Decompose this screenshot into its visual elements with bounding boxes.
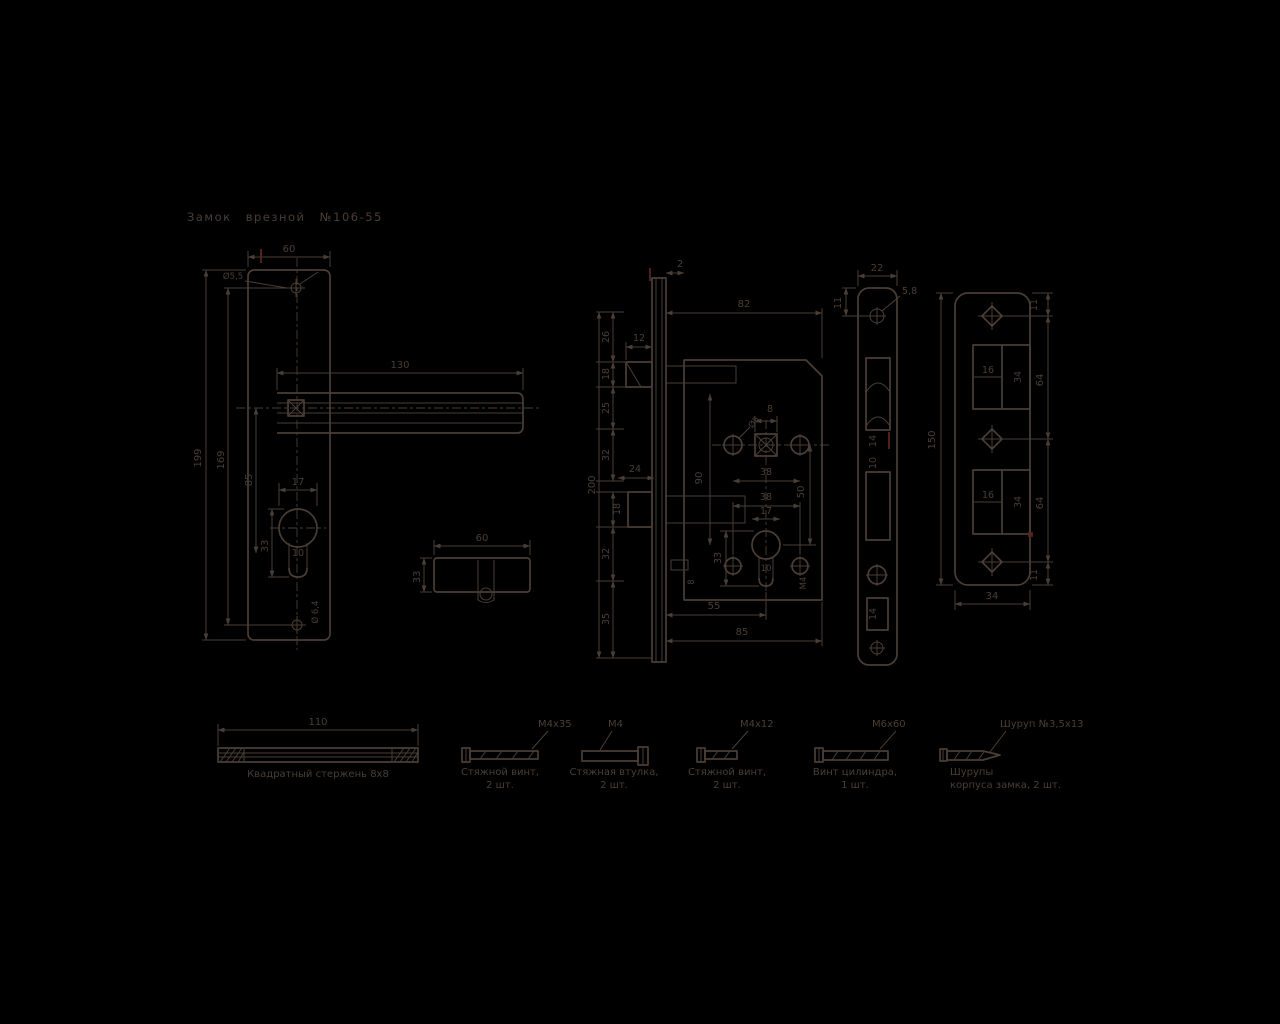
lock-technical-drawing: Замок врезной №106-55 60 Ø5,5 199 169 85: [0, 0, 1280, 1024]
cylinder-view: 60 33: [412, 533, 530, 603]
bolt-m6x60-item: М6х60 Винт цилиндра, 1 шт.: [813, 719, 906, 791]
caption-m6x60-2: 1 шт.: [841, 780, 869, 791]
dim-top-hole: Ø5,5: [223, 271, 243, 282]
dim-face-gap: 2: [677, 259, 683, 270]
hardware-legend: 110 Квадратный стержень 8х8: [218, 717, 1084, 791]
dim-plate-height: 199: [193, 448, 204, 467]
dim-strike-top-offset: 11: [1029, 299, 1040, 311]
caption-m4x12-1: Стяжной винт,: [688, 767, 766, 778]
dim-latch-height: 18: [601, 368, 612, 380]
caption-wood-screw-2: корпуса замка, 2 шт.: [950, 780, 1061, 791]
handle-plate-view: 60 Ø5,5 199 169 85 130: [193, 244, 540, 650]
dim-cutout1-width: 16: [982, 365, 994, 376]
lock-body-view: 2 82 12 24 26: [587, 259, 830, 662]
drawing-page: Замок врезной №106-55 60 Ø5,5 199 169 85: [0, 0, 1280, 1024]
dim-plate-cyl-slot: 10: [292, 548, 304, 559]
caption-m6x60-1: Винт цилиндра,: [813, 767, 897, 778]
bolt-m4x35-item: М4х35 Стяжной винт, 2 шт.: [461, 719, 572, 791]
dim-strike-height: 150: [927, 430, 938, 449]
caption-m4x35-2: 2 шт.: [486, 780, 514, 791]
dim-latch-window: 14: [868, 435, 879, 447]
dim-strike-lower-span: 64: [1035, 497, 1046, 510]
faceplate-view: 22 11 5,8 14 10 14: [833, 263, 917, 665]
dim-cutout2-width: 16: [982, 490, 994, 501]
square-rod-item: 110 Квадратный стержень 8х8: [218, 717, 418, 780]
caption-m4x35-1: Стяжной винт,: [461, 767, 539, 778]
dim-bottom-window: 14: [868, 608, 879, 620]
dim-handle-length: 130: [390, 360, 409, 371]
dim-faceplate-top-offset: 11: [833, 297, 844, 309]
dim-body-cyl-height: 33: [713, 552, 724, 564]
bushing-m4-item: М4 Стяжная втулка, 2 шт.: [569, 719, 658, 791]
dim-faceplate-width: 22: [871, 263, 884, 274]
dim-faceplate-screw-hole: 5,8: [902, 286, 917, 297]
dim-plate-width: 60: [283, 244, 296, 255]
dim-seg-25: 25: [601, 402, 612, 414]
caption-wood-screw-1: Шурупы: [950, 767, 993, 778]
dim-cylinder-length: 60: [476, 533, 489, 544]
rod-hatch-left: [220, 748, 244, 762]
rod-hatch-right: [394, 748, 418, 762]
dim-bottom-hole: Ø 6,4: [310, 601, 321, 624]
dim-latch-depth: 12: [633, 333, 645, 344]
dim-body-width: 82: [738, 299, 751, 310]
bolt-m4x12-item: М4х12 Стяжной винт, 2 шт.: [688, 719, 774, 791]
dim-bottom-holes-span: 38: [760, 492, 772, 503]
dim-body-cyl-width: 17: [760, 506, 772, 517]
dim-body-total-height: 200: [587, 475, 598, 494]
dim-cylinder-height: 33: [412, 571, 423, 584]
drawing-title: Замок врезной №106-55: [187, 210, 383, 224]
dim-backset: 55: [708, 601, 721, 612]
dim-body-depth: 85: [736, 627, 749, 638]
dim-cutout1-height: 34: [1013, 371, 1024, 383]
dim-strike-bottom-offset: 11: [1029, 569, 1040, 581]
dim-bolt-height: 18: [612, 503, 623, 515]
dim-plate-holes-span: 169: [216, 450, 227, 469]
label-m4x12: М4х12: [740, 719, 774, 730]
dim-top-holes-span: 38: [760, 467, 772, 478]
dim-strike-width: 34: [986, 591, 999, 602]
caption-m4-2: 2 шт.: [600, 780, 628, 791]
label-m6x60: М6х60: [872, 719, 906, 730]
dim-bolt-depth: 24: [629, 464, 641, 475]
label-wood-screw: Шуруп №3,5х13: [1000, 719, 1084, 730]
dim-strike-upper-span: 64: [1035, 374, 1046, 387]
dim-seg-35: 35: [601, 613, 612, 625]
label-m4x35: М4х35: [538, 719, 572, 730]
dim-plate-cyl-width: 17: [292, 477, 305, 488]
dim-seg-26: 26: [601, 331, 612, 343]
dim-plate-axes-span: 85: [244, 474, 255, 487]
label-thread: М4: [799, 577, 809, 590]
caption-m4x12-2: 2 шт.: [713, 780, 741, 791]
dim-inner-span: 90: [694, 472, 705, 485]
dim-plate-cyl-height: 33: [260, 540, 271, 553]
dim-seg-32b: 32: [601, 548, 612, 560]
strike-plate-view: 150 16 34 16 34 11 64 64: [927, 293, 1053, 610]
rod-label: Квадратный стержень 8х8: [247, 769, 389, 780]
dim-window-gap: 10: [868, 457, 879, 469]
wood-screw-item: Шуруп №3,5х13 Шурупы корпуса замка, 2 шт…: [940, 719, 1084, 791]
label-slot: 8: [687, 579, 697, 584]
caption-m4-1: Стяжная втулка,: [569, 767, 658, 778]
dim-rod-length: 110: [308, 717, 327, 728]
dim-cutout2-height: 34: [1013, 496, 1024, 508]
label-m4: М4: [608, 719, 623, 730]
dim-axes-span: 50: [796, 486, 807, 499]
dim-body-cyl-slot: 10: [761, 564, 772, 574]
dim-spindle-square: 8: [767, 404, 773, 415]
dim-seg-32a: 32: [601, 449, 612, 461]
